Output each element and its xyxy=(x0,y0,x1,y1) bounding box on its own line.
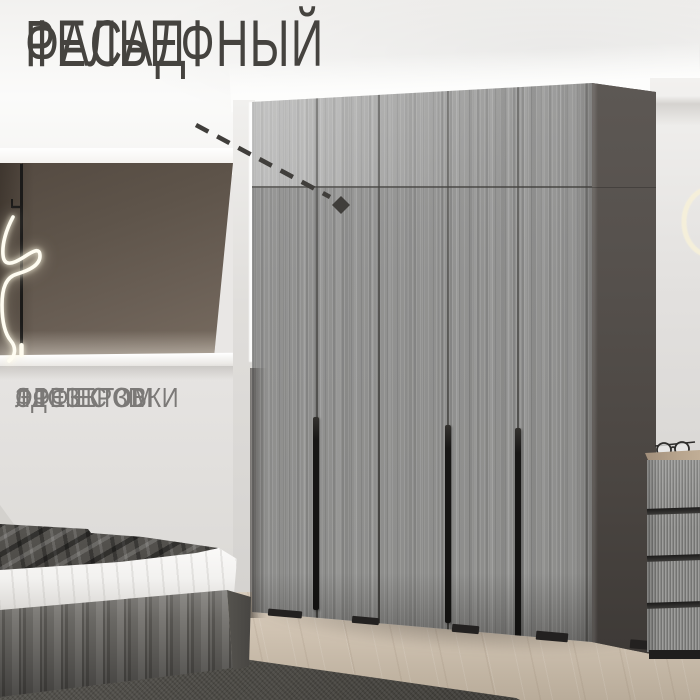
product-scene: РЕЛЬЕФНЫЙ ФАСАД ЛДСП С 3D ЭФФЕКТОМ ФРЕЗЕ… xyxy=(0,0,700,700)
arrow-dashed-line xyxy=(196,125,330,197)
glow-ring-decor xyxy=(668,184,700,264)
feature-line-3: ФРЕЗЕРОВКИ xyxy=(15,377,179,418)
dresser-base xyxy=(649,650,700,659)
dresser-drawer-gap xyxy=(647,554,700,562)
dresser-drawer-gap xyxy=(647,601,700,609)
arrow-head xyxy=(332,196,350,214)
wardrobe-handle xyxy=(515,428,521,637)
dresser-drawer-gap xyxy=(647,507,700,515)
pendant-lamp xyxy=(0,158,64,373)
dresser xyxy=(645,436,700,660)
annotation-arrow xyxy=(180,110,370,230)
wardrobe-left-edge-shade xyxy=(250,368,267,618)
wardrobe-handle xyxy=(313,417,319,610)
headline-line-2: ФАСАД xyxy=(25,12,187,75)
dresser-body xyxy=(647,460,700,652)
wardrobe-door-seam xyxy=(378,83,380,643)
wardrobe-side-seam xyxy=(592,187,656,188)
lamp-rod-tip-glow xyxy=(19,343,23,357)
wardrobe-handle xyxy=(445,425,451,623)
wardrobe-door-seam xyxy=(586,83,588,643)
